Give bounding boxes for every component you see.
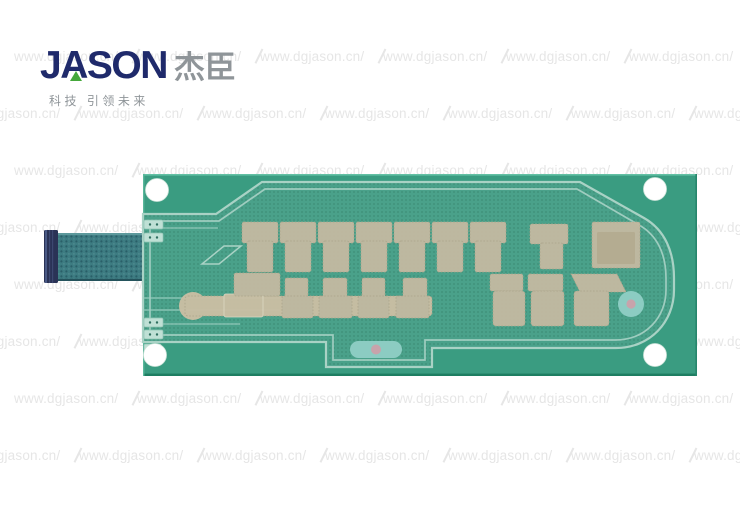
watermark-text: www.dgjason.cn/ [260, 391, 364, 406]
large-rect-pad [592, 222, 640, 268]
watermark-unit: www.dgjason.cn/ [260, 390, 383, 406]
watermark-unit: www.dgjason.cn/ [383, 390, 506, 406]
watermark-text: www.dgjason.cn/ [0, 448, 60, 463]
wide-cap-pad [234, 273, 280, 296]
watermark-unit: www.dgjason.cn/ [0, 447, 79, 463]
led-window [618, 291, 644, 317]
watermark-unit: www.dgjason.cn/ [260, 48, 383, 64]
watermark-unit: www.dgjason.cn/ [448, 105, 571, 121]
watermark-text: www.dgjason.cn/ [629, 49, 733, 64]
logo-jason-text: JASON [40, 46, 167, 85]
watermark-text: www.dgjason.cn/ [448, 106, 552, 121]
watermark-text: www.dgjason.cn/ [325, 106, 429, 121]
right-key-cluster [490, 274, 626, 326]
watermark-text: www.dgjason.cn/ [202, 448, 306, 463]
watermark-text: www.dgjason.cn/ [14, 391, 118, 406]
watermark-unit: www.dgjason.cn/ [571, 105, 694, 121]
watermark-text: www.dgjason.cn/ [694, 220, 740, 235]
watermark-unit: www.dgjason.cn/ [629, 390, 740, 406]
watermark-text: www.dgjason.cn/ [383, 49, 487, 64]
watermark-unit: www.dgjason.cn/ [137, 390, 260, 406]
logo-tagline: 科技 引领未来 [49, 92, 236, 109]
watermark-text: www.dgjason.cn/ [383, 391, 487, 406]
watermark-text: www.dgjason.cn/ [506, 49, 610, 64]
watermark-unit: www.dgjason.cn/ [79, 447, 202, 463]
logo-chinese-text: 杰臣 [174, 52, 236, 83]
watermark-text: www.dgjason.cn/ [694, 448, 740, 463]
alignment-capsule [350, 341, 402, 358]
watermark-unit: www.dgjason.cn/ [325, 447, 448, 463]
watermark-unit: www.dgjason.cn/ [694, 219, 740, 235]
watermark-unit: www.dgjason.cn/ [694, 333, 740, 349]
watermark-unit: www.dgjason.cn/ [571, 447, 694, 463]
watermark-unit: www.dgjason.cn/ [383, 48, 506, 64]
watermark-text: www.dgjason.cn/ [325, 448, 429, 463]
fpc-connector [44, 230, 58, 283]
watermark-text: www.dgjason.cn/ [137, 391, 241, 406]
watermark-unit: www.dgjason.cn/ [694, 105, 740, 121]
watermark-unit: www.dgjason.cn/ [629, 48, 740, 64]
watermark-text: www.dgjason.cn/ [79, 448, 183, 463]
watermark-unit: www.dgjason.cn/ [14, 390, 137, 406]
watermark-unit: www.dgjason.cn/ [694, 447, 740, 463]
watermark-text: www.dgjason.cn/ [694, 334, 740, 349]
watermark-unit: www.dgjason.cn/ [506, 48, 629, 64]
logo: JASON 杰臣 科技 引领未来 [40, 46, 236, 109]
watermark-text: www.dgjason.cn/ [448, 448, 552, 463]
membrane-switch-board [40, 170, 700, 380]
watermark-unit: www.dgjason.cn/ [448, 447, 571, 463]
watermark-text: www.dgjason.cn/ [694, 106, 740, 121]
watermark-unit: www.dgjason.cn/ [202, 447, 325, 463]
watermark-text: www.dgjason.cn/ [506, 391, 610, 406]
watermark-text: www.dgjason.cn/ [571, 448, 675, 463]
watermark-unit: www.dgjason.cn/ [325, 105, 448, 121]
watermark-text: www.dgjason.cn/ [629, 391, 733, 406]
watermark-text: www.dgjason.cn/ [571, 106, 675, 121]
product-photo: www.dgjason.cn/www.dgjason.cn/www.dgjaso… [0, 0, 740, 512]
watermark-text: www.dgjason.cn/ [260, 49, 364, 64]
watermark-unit: www.dgjason.cn/ [506, 390, 629, 406]
